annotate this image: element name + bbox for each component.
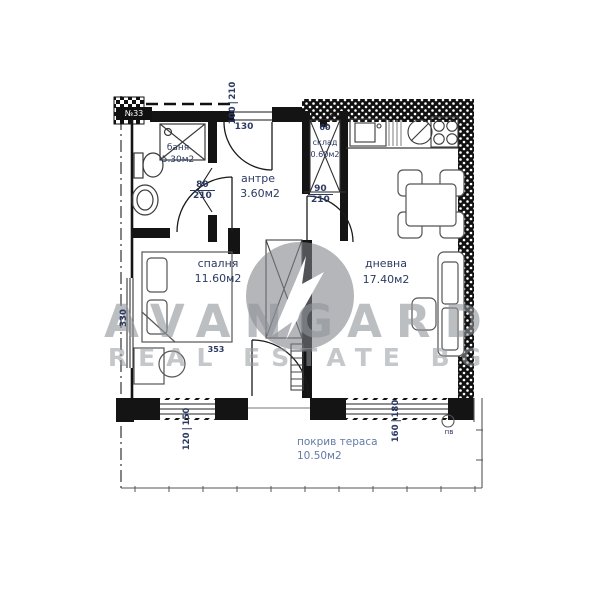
dim-bedroom-door: 80 210 [190, 180, 215, 202]
dim-value: 330 [119, 306, 129, 330]
pillow-icon [147, 258, 167, 292]
dining-set [398, 170, 464, 238]
dim-value: 160 [391, 422, 401, 446]
dim-living-door: 90 210 [308, 184, 333, 206]
living-area: 17.40м2 [344, 274, 428, 287]
dim-value: 90 [308, 184, 333, 195]
storage-area: 0.60м2 [298, 150, 352, 159]
dim-bedroom-length: 353 [202, 345, 230, 354]
coffee-table-icon [412, 298, 436, 330]
hall-label: антре [226, 173, 290, 186]
shaft-label: КЛ [330, 111, 340, 119]
dim-value: 80 [190, 180, 215, 191]
dim-value: 150 [182, 405, 192, 430]
hall-area: 3.60м2 [224, 188, 296, 201]
avangard-logo-icon [244, 240, 356, 352]
dim-value: 210 [308, 195, 333, 205]
bathroom-label: баня [146, 143, 210, 153]
bathroom-area: 5.30м2 [146, 155, 210, 165]
lamp-icon [159, 351, 185, 377]
dim-value: 210 [190, 191, 215, 201]
dim-entry-door: 100210 [228, 79, 238, 128]
dim-value: 180 [391, 397, 401, 422]
dim-value: 100 [228, 104, 238, 128]
terrace-label: покрив тераса [297, 436, 378, 448]
terrace-area: 10.50м2 [297, 450, 342, 462]
bedroom-label: спалня [180, 258, 256, 271]
dim-value: 120 [182, 430, 192, 454]
dim-window-left: 120150 [182, 405, 192, 454]
living-label: дневна [348, 258, 424, 271]
vent-label: пв [441, 428, 457, 436]
dim-value: 210 [228, 79, 238, 104]
storage-label: склад [302, 138, 348, 147]
floor-plan: AVANGARD REAL ESTATE BG №33 баня 5.30м2 … [0, 0, 600, 600]
toilet-icon [134, 153, 143, 178]
pillow-icon [147, 300, 167, 334]
dim-window-right: 160180 [391, 397, 401, 446]
dim-bedroom-width: 330 [119, 306, 129, 330]
bedroom-area: 11.60м2 [176, 273, 260, 286]
dim-storage-width: 60 [312, 123, 338, 132]
dining-table-icon [406, 184, 456, 226]
unit-number-badge: №33 [116, 107, 152, 120]
